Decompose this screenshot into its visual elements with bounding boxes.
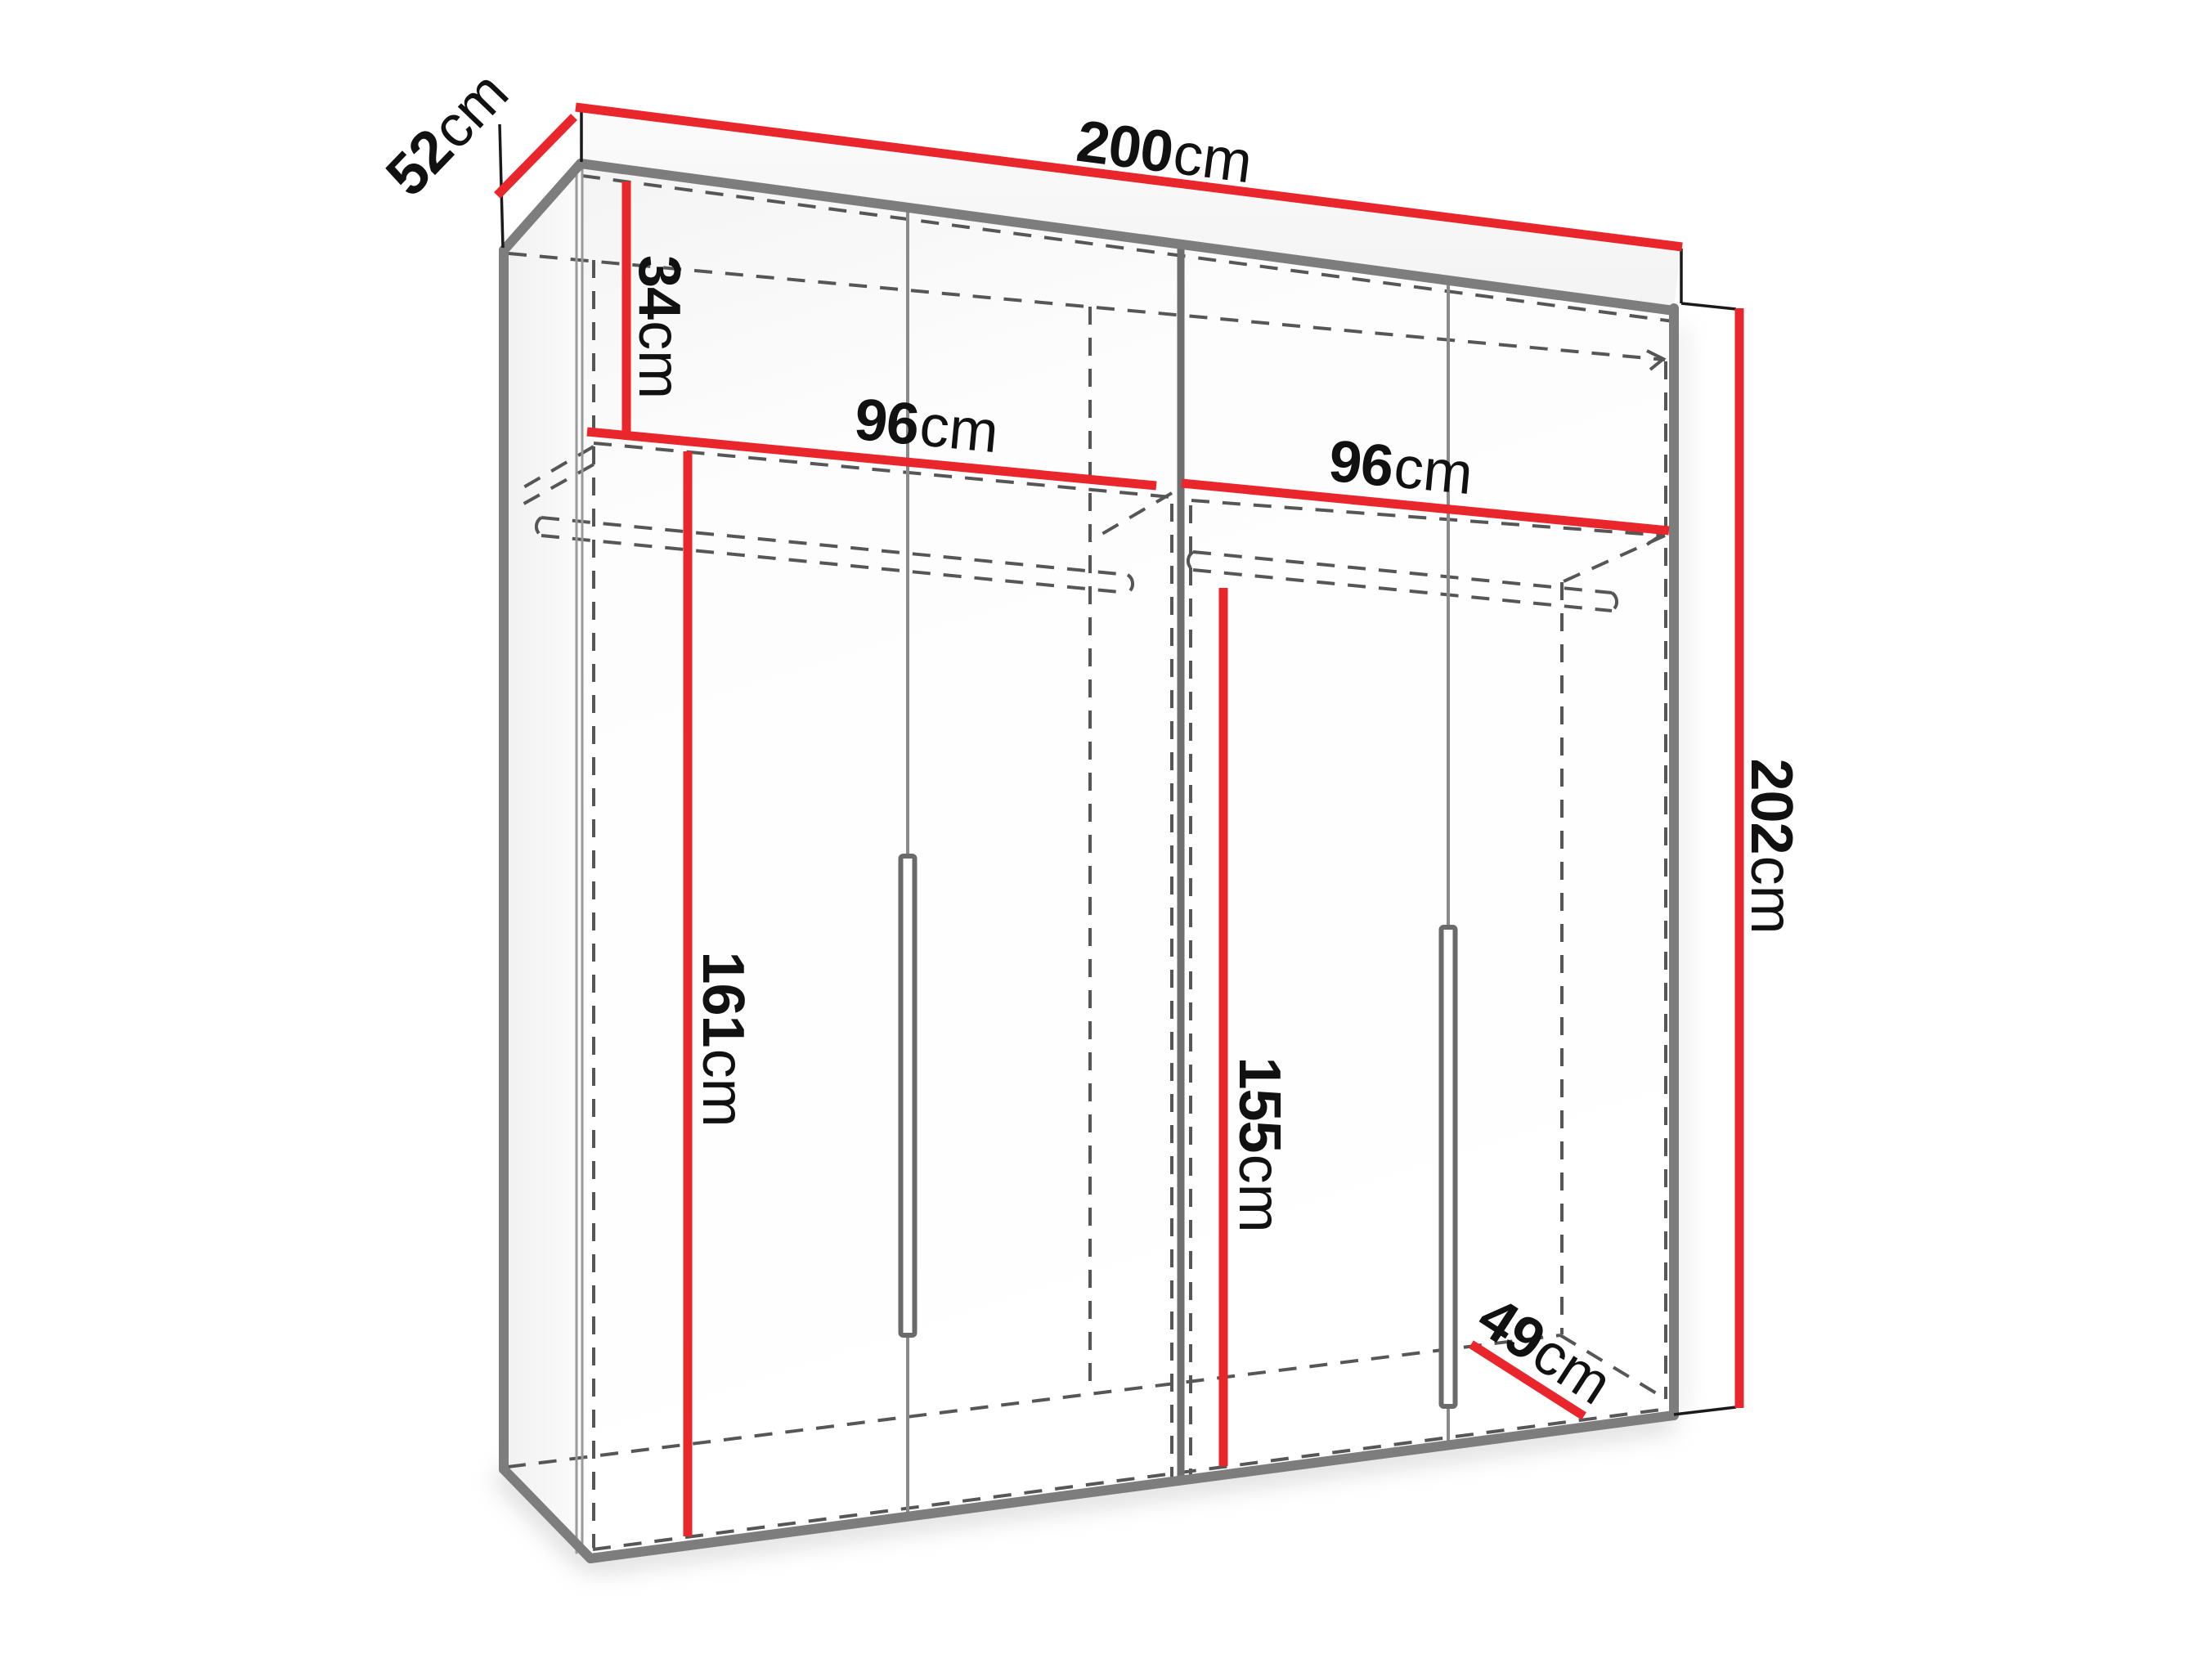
dim-label-right-section-width: 96cm: [1326, 428, 1476, 508]
wardrobe-dimension-diagram: 52cm 200cm 34cm 96cm 96cm 161cm 155cm 20…: [0, 0, 2212, 1659]
dim-label-height: 202cm: [1739, 758, 1804, 934]
left-door-handle: [901, 856, 915, 1335]
dim-label-left-hanging-height: 161cm: [690, 951, 756, 1127]
right-door-handle: [1442, 927, 1456, 1406]
dim-label-left-section-width: 96cm: [852, 387, 1002, 466]
dim-label-top-shelf-height: 34cm: [626, 255, 692, 399]
dim-label-right-hanging-height: 155cm: [1227, 1056, 1292, 1232]
left-side-face: [504, 164, 581, 1555]
